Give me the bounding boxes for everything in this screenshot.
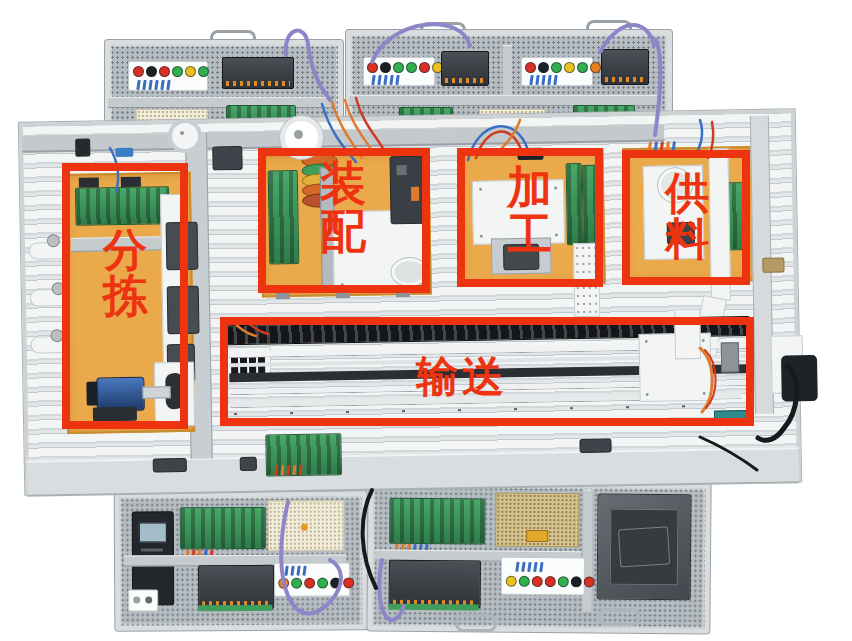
pushbutton-strip [128, 61, 208, 91]
blue-wire [547, 75, 551, 85]
end-motor [781, 355, 818, 402]
red-wire [286, 465, 290, 475]
indicator-button [185, 66, 196, 77]
hold-down-clamp [579, 439, 611, 454]
indicator-button [317, 578, 328, 589]
indicator-button [584, 576, 595, 587]
indicator-button [571, 576, 582, 587]
plc-baseboard [389, 604, 479, 611]
blue-wire [371, 75, 375, 85]
plc-module [198, 565, 274, 609]
hold-down-clamp [153, 458, 187, 473]
vfd-display [139, 522, 167, 542]
hold-down-clamp [240, 457, 257, 471]
indicator-buttons [506, 576, 595, 588]
blue-wire [377, 75, 381, 85]
orange-wire [292, 465, 296, 475]
blue-wire [535, 75, 539, 85]
blue-wire [142, 80, 146, 90]
indicator-button [367, 62, 378, 73]
bottom-right-control-panel [367, 481, 710, 634]
blue-wire [539, 562, 543, 572]
indicator-button [146, 66, 157, 77]
plc-module [601, 49, 649, 85]
blue-wire [515, 562, 519, 572]
blue-wire [527, 562, 531, 572]
plc-module [389, 560, 481, 609]
orange-wire [280, 465, 284, 475]
hmi-screen [610, 509, 679, 586]
blue-wire [529, 75, 533, 85]
indicator-button [380, 62, 391, 73]
hmi-touchscreen [597, 494, 692, 601]
blue-wire [154, 80, 158, 90]
blue-wire [553, 75, 557, 85]
deck-terminal-pcb [265, 433, 342, 476]
indicator-button [564, 62, 575, 73]
wire-stubs [285, 566, 306, 576]
annotation-label-sorting: 分拣 [102, 227, 148, 319]
annotation-label-supply: 供料 [664, 170, 710, 262]
indicator-button [393, 62, 404, 73]
blue-wire [533, 562, 537, 572]
annotated-equipment-photo: 分拣 装配 加工 供料 输送 [0, 0, 852, 641]
indicator-button [343, 577, 354, 588]
power-supply-unit [495, 493, 579, 548]
pushbutton-strip [363, 57, 435, 86]
annotation-label-conveying: 输送 [416, 349, 508, 405]
indicator-button [419, 62, 430, 73]
indicator-buttons [278, 577, 354, 588]
wire-stubs [372, 75, 399, 85]
wire-stubs [275, 465, 302, 475]
indicator-button [172, 66, 183, 77]
annotation-label-assembly: 装配 [319, 159, 367, 256]
knob [145, 596, 152, 603]
blue-wire [290, 566, 294, 576]
wire-stubs [516, 562, 543, 572]
indicator-button [590, 62, 601, 73]
plc-module [441, 51, 489, 86]
blue-wire [389, 75, 393, 85]
wire-stubs [530, 75, 557, 85]
knob-plate [128, 589, 158, 611]
case-handle [598, 608, 640, 626]
hold-down-clamp [212, 146, 242, 171]
bronze-fitting [762, 257, 784, 272]
bottom-left-control-panel [115, 491, 368, 630]
blue-sensor [115, 148, 133, 157]
indicator-button [577, 62, 588, 73]
black-knob [75, 139, 90, 157]
blue-wire [296, 566, 300, 576]
indicator-button [304, 578, 315, 589]
vfd-keys [141, 548, 163, 551]
indicator-button [532, 576, 543, 587]
case-handle [455, 614, 497, 632]
indicator-button [159, 66, 170, 77]
pushbutton-strip [501, 557, 585, 596]
red-wire [298, 465, 302, 475]
indicator-buttons [367, 62, 443, 73]
breadboard-led [301, 524, 308, 531]
panel-rail [108, 97, 330, 108]
indicator-button [551, 62, 562, 73]
indicator-button [330, 577, 341, 588]
terminal-pcb [180, 507, 266, 549]
indicator-buttons [133, 66, 209, 77]
annotation-label-processing: 加工 [506, 164, 553, 259]
plc-module [222, 57, 294, 89]
disc-hole [294, 130, 303, 139]
blue-wire [160, 80, 164, 90]
blue-wire [284, 566, 288, 576]
blue-wire [136, 80, 140, 90]
knob [133, 597, 140, 604]
stack-light-base [168, 119, 202, 153]
blue-wire [383, 75, 387, 85]
blue-wire [541, 75, 545, 85]
indicator-button [133, 66, 144, 77]
indicator-buttons [525, 62, 601, 73]
blue-wire [395, 75, 399, 85]
blue-wire [302, 566, 306, 576]
indicator-button [291, 578, 302, 589]
breadboard [268, 500, 344, 550]
indicator-button [538, 62, 549, 73]
indicator-button [545, 576, 556, 587]
hmi-screen-graphic [618, 526, 670, 567]
pushbutton-strip [521, 57, 593, 86]
plc-baseboard [198, 605, 272, 611]
indicator-button [519, 576, 530, 587]
indicator-button [406, 62, 417, 73]
indicator-button [506, 576, 517, 587]
blue-wire [166, 80, 170, 90]
wire-stubs [137, 80, 170, 90]
indicator-button [278, 578, 289, 589]
terminal-pcb [389, 498, 485, 545]
psu-label [526, 530, 548, 542]
blue-wire [521, 562, 525, 572]
disc-center [180, 131, 184, 135]
blue-wire [148, 80, 152, 90]
pushbutton-strip [274, 562, 350, 596]
indicator-button [525, 62, 536, 73]
indicator-button [198, 66, 209, 77]
indicator-button [558, 576, 569, 587]
red-wire [274, 465, 278, 475]
